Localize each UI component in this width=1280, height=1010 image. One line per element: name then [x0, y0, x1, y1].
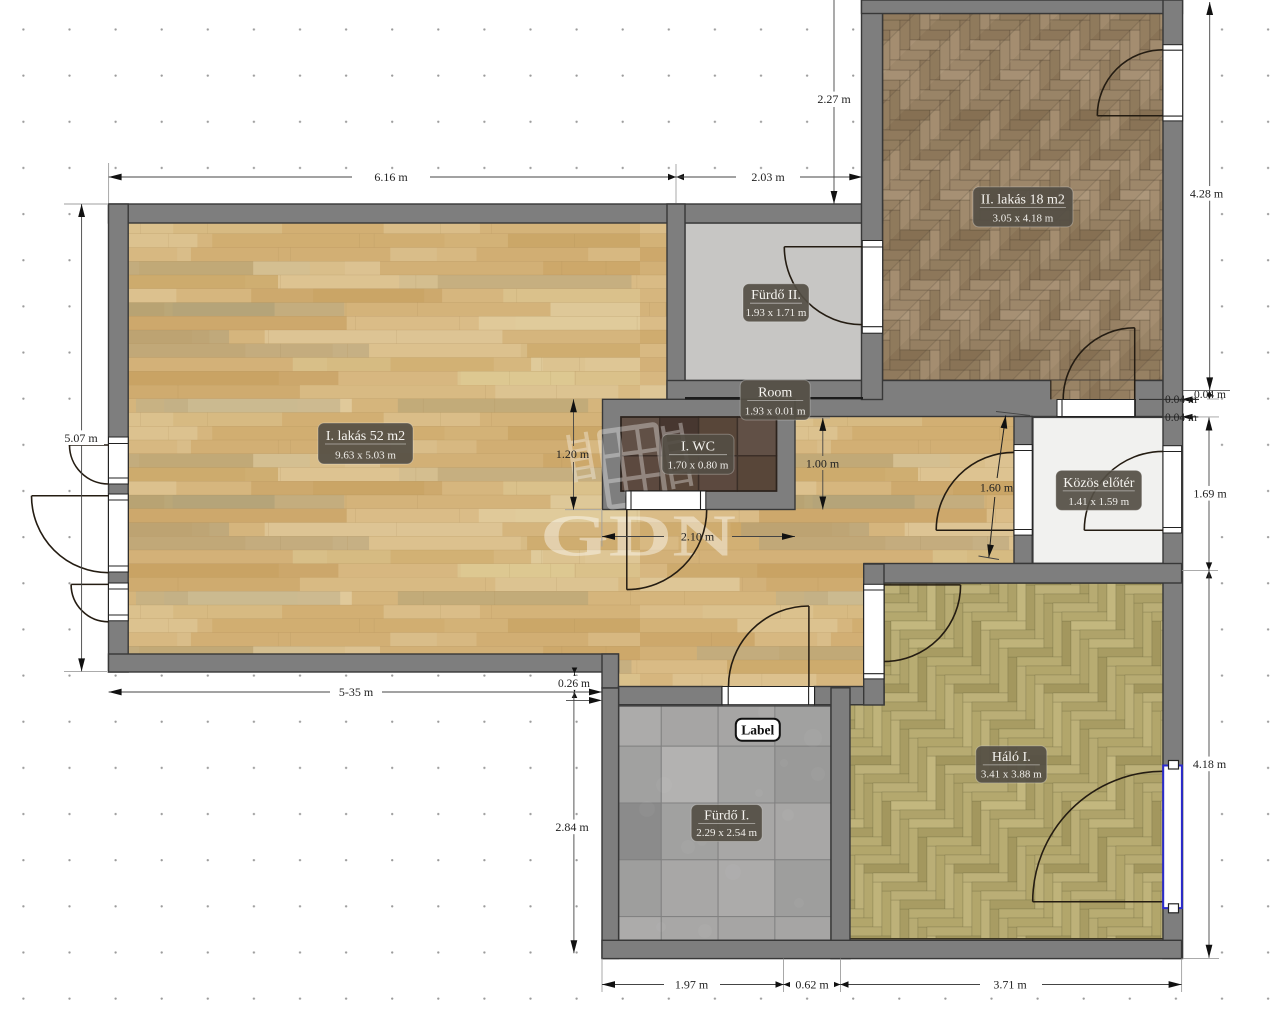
svg-text:9.63 x 5.03 m: 9.63 x 5.03 m	[335, 450, 396, 462]
svg-text:4.28 m: 4.28 m	[1190, 187, 1224, 201]
svg-text:0.04 m: 0.04 m	[1165, 394, 1197, 406]
svg-text:3.41 x 3.88 m: 3.41 x 3.88 m	[981, 768, 1042, 780]
svg-text:1.69 m: 1.69 m	[1193, 487, 1227, 501]
svg-text:Fürdő II.: Fürdő II.	[751, 288, 801, 303]
svg-text:2.84 m: 2.84 m	[555, 820, 589, 834]
svg-text:Közös előtér: Közös előtér	[1063, 476, 1134, 491]
svg-text:0.26 m: 0.26 m	[558, 678, 590, 690]
svg-text:1.20 m: 1.20 m	[556, 447, 590, 461]
svg-text:1.41 x 1.59 m: 1.41 x 1.59 m	[1068, 496, 1129, 508]
svg-text:I. WC: I. WC	[681, 440, 715, 455]
svg-text:0.04 m: 0.04 m	[1165, 412, 1197, 424]
svg-text:1.60 m: 1.60 m	[980, 481, 1014, 495]
svg-text:Háló I.: Háló I.	[992, 750, 1031, 765]
svg-text:Label: Label	[741, 723, 774, 738]
svg-text:0.04 m: 0.04 m	[1194, 389, 1226, 401]
svg-text:3.71 m: 3.71 m	[993, 978, 1027, 992]
svg-text:1.00 m: 1.00 m	[806, 456, 840, 470]
svg-text:I. lakás 52 m2: I. lakás 52 m2	[326, 429, 405, 444]
svg-text:5-35 m: 5-35 m	[339, 685, 374, 699]
svg-text:0.62 m: 0.62 m	[795, 978, 829, 992]
svg-text:1.93 x 0.01 m: 1.93 x 0.01 m	[745, 406, 806, 418]
svg-text:1.97 m: 1.97 m	[675, 978, 709, 992]
svg-text:3.05 x 4.18 m: 3.05 x 4.18 m	[992, 212, 1053, 224]
svg-text:Room: Room	[758, 386, 792, 401]
svg-text:II. lakás 18 m2: II. lakás 18 m2	[981, 192, 1065, 207]
svg-text:4.18 m: 4.18 m	[1193, 757, 1227, 771]
svg-text:5.07 m: 5.07 m	[64, 431, 98, 445]
svg-text:1.93 x 1.71 m: 1.93 x 1.71 m	[746, 307, 807, 319]
svg-text:2.03 m: 2.03 m	[751, 170, 785, 184]
svg-text:2.27 m: 2.27 m	[817, 92, 851, 106]
svg-text:6.16 m: 6.16 m	[374, 170, 408, 184]
svg-text:Fürdő I.: Fürdő I.	[704, 809, 749, 824]
svg-text:1.70 x 0.80 m: 1.70 x 0.80 m	[668, 460, 729, 472]
svg-text:2.10 m: 2.10 m	[681, 530, 715, 544]
svg-text:2.29 x 2.54 m: 2.29 x 2.54 m	[696, 827, 757, 839]
